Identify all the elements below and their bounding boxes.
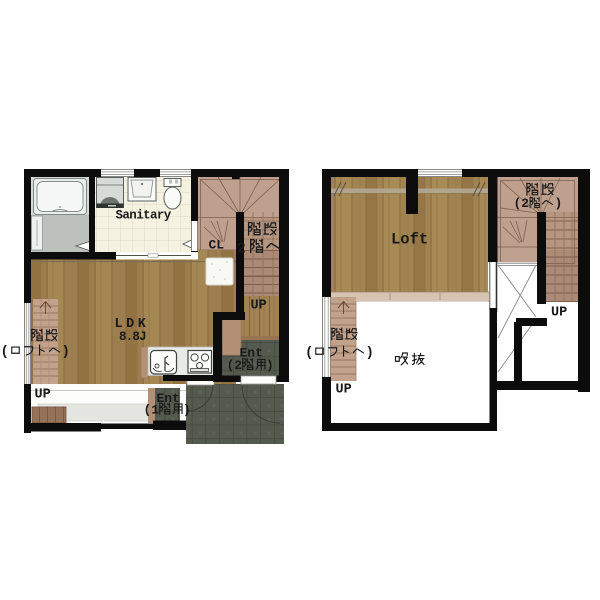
svg-text:UP: UP xyxy=(551,306,567,321)
svg-text:CL: CL xyxy=(209,238,225,253)
svg-text:): ) xyxy=(183,403,191,418)
svg-text:UP: UP xyxy=(35,388,51,403)
svg-text:(2: (2 xyxy=(514,196,530,211)
svg-text:(1: (1 xyxy=(144,403,160,418)
svg-text:): ) xyxy=(266,358,274,373)
svg-text:): ) xyxy=(62,344,70,360)
svg-text:(: ( xyxy=(305,345,313,361)
svg-text:UP: UP xyxy=(251,299,267,314)
svg-text:Sanitary: Sanitary xyxy=(116,209,172,223)
svg-text:(: ( xyxy=(1,344,9,360)
svg-text:): ) xyxy=(555,196,563,211)
svg-text:2: 2 xyxy=(237,242,246,258)
svg-text:UP: UP xyxy=(336,383,352,398)
svg-text:8.8J: 8.8J xyxy=(119,330,146,344)
svg-text:): ) xyxy=(366,345,374,361)
svg-text:(2: (2 xyxy=(227,358,243,373)
svg-text:Loft: Loft xyxy=(391,231,428,249)
